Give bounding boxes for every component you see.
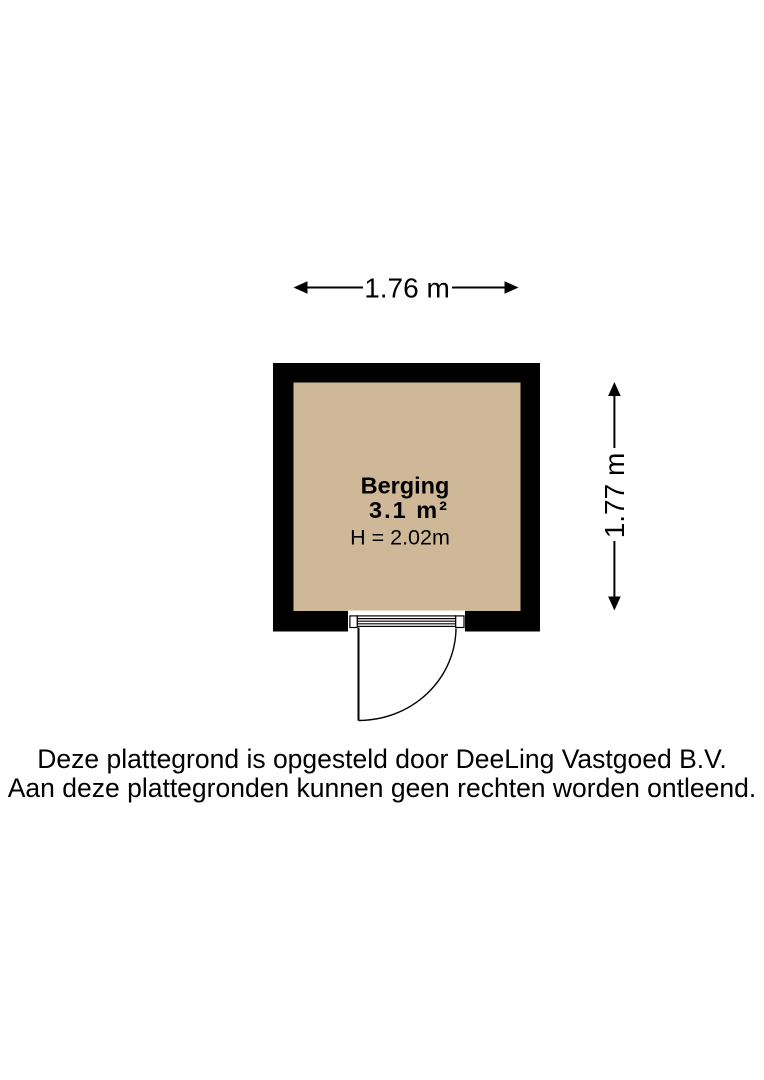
svg-text:1.77 m: 1.77 m [599,453,630,539]
svg-text:1.76 m: 1.76 m [364,273,450,304]
svg-text:H = 2.02m: H = 2.02m [350,526,450,550]
svg-text:Berging: Berging [361,473,450,499]
svg-text:3.1 m²: 3.1 m² [369,497,449,523]
